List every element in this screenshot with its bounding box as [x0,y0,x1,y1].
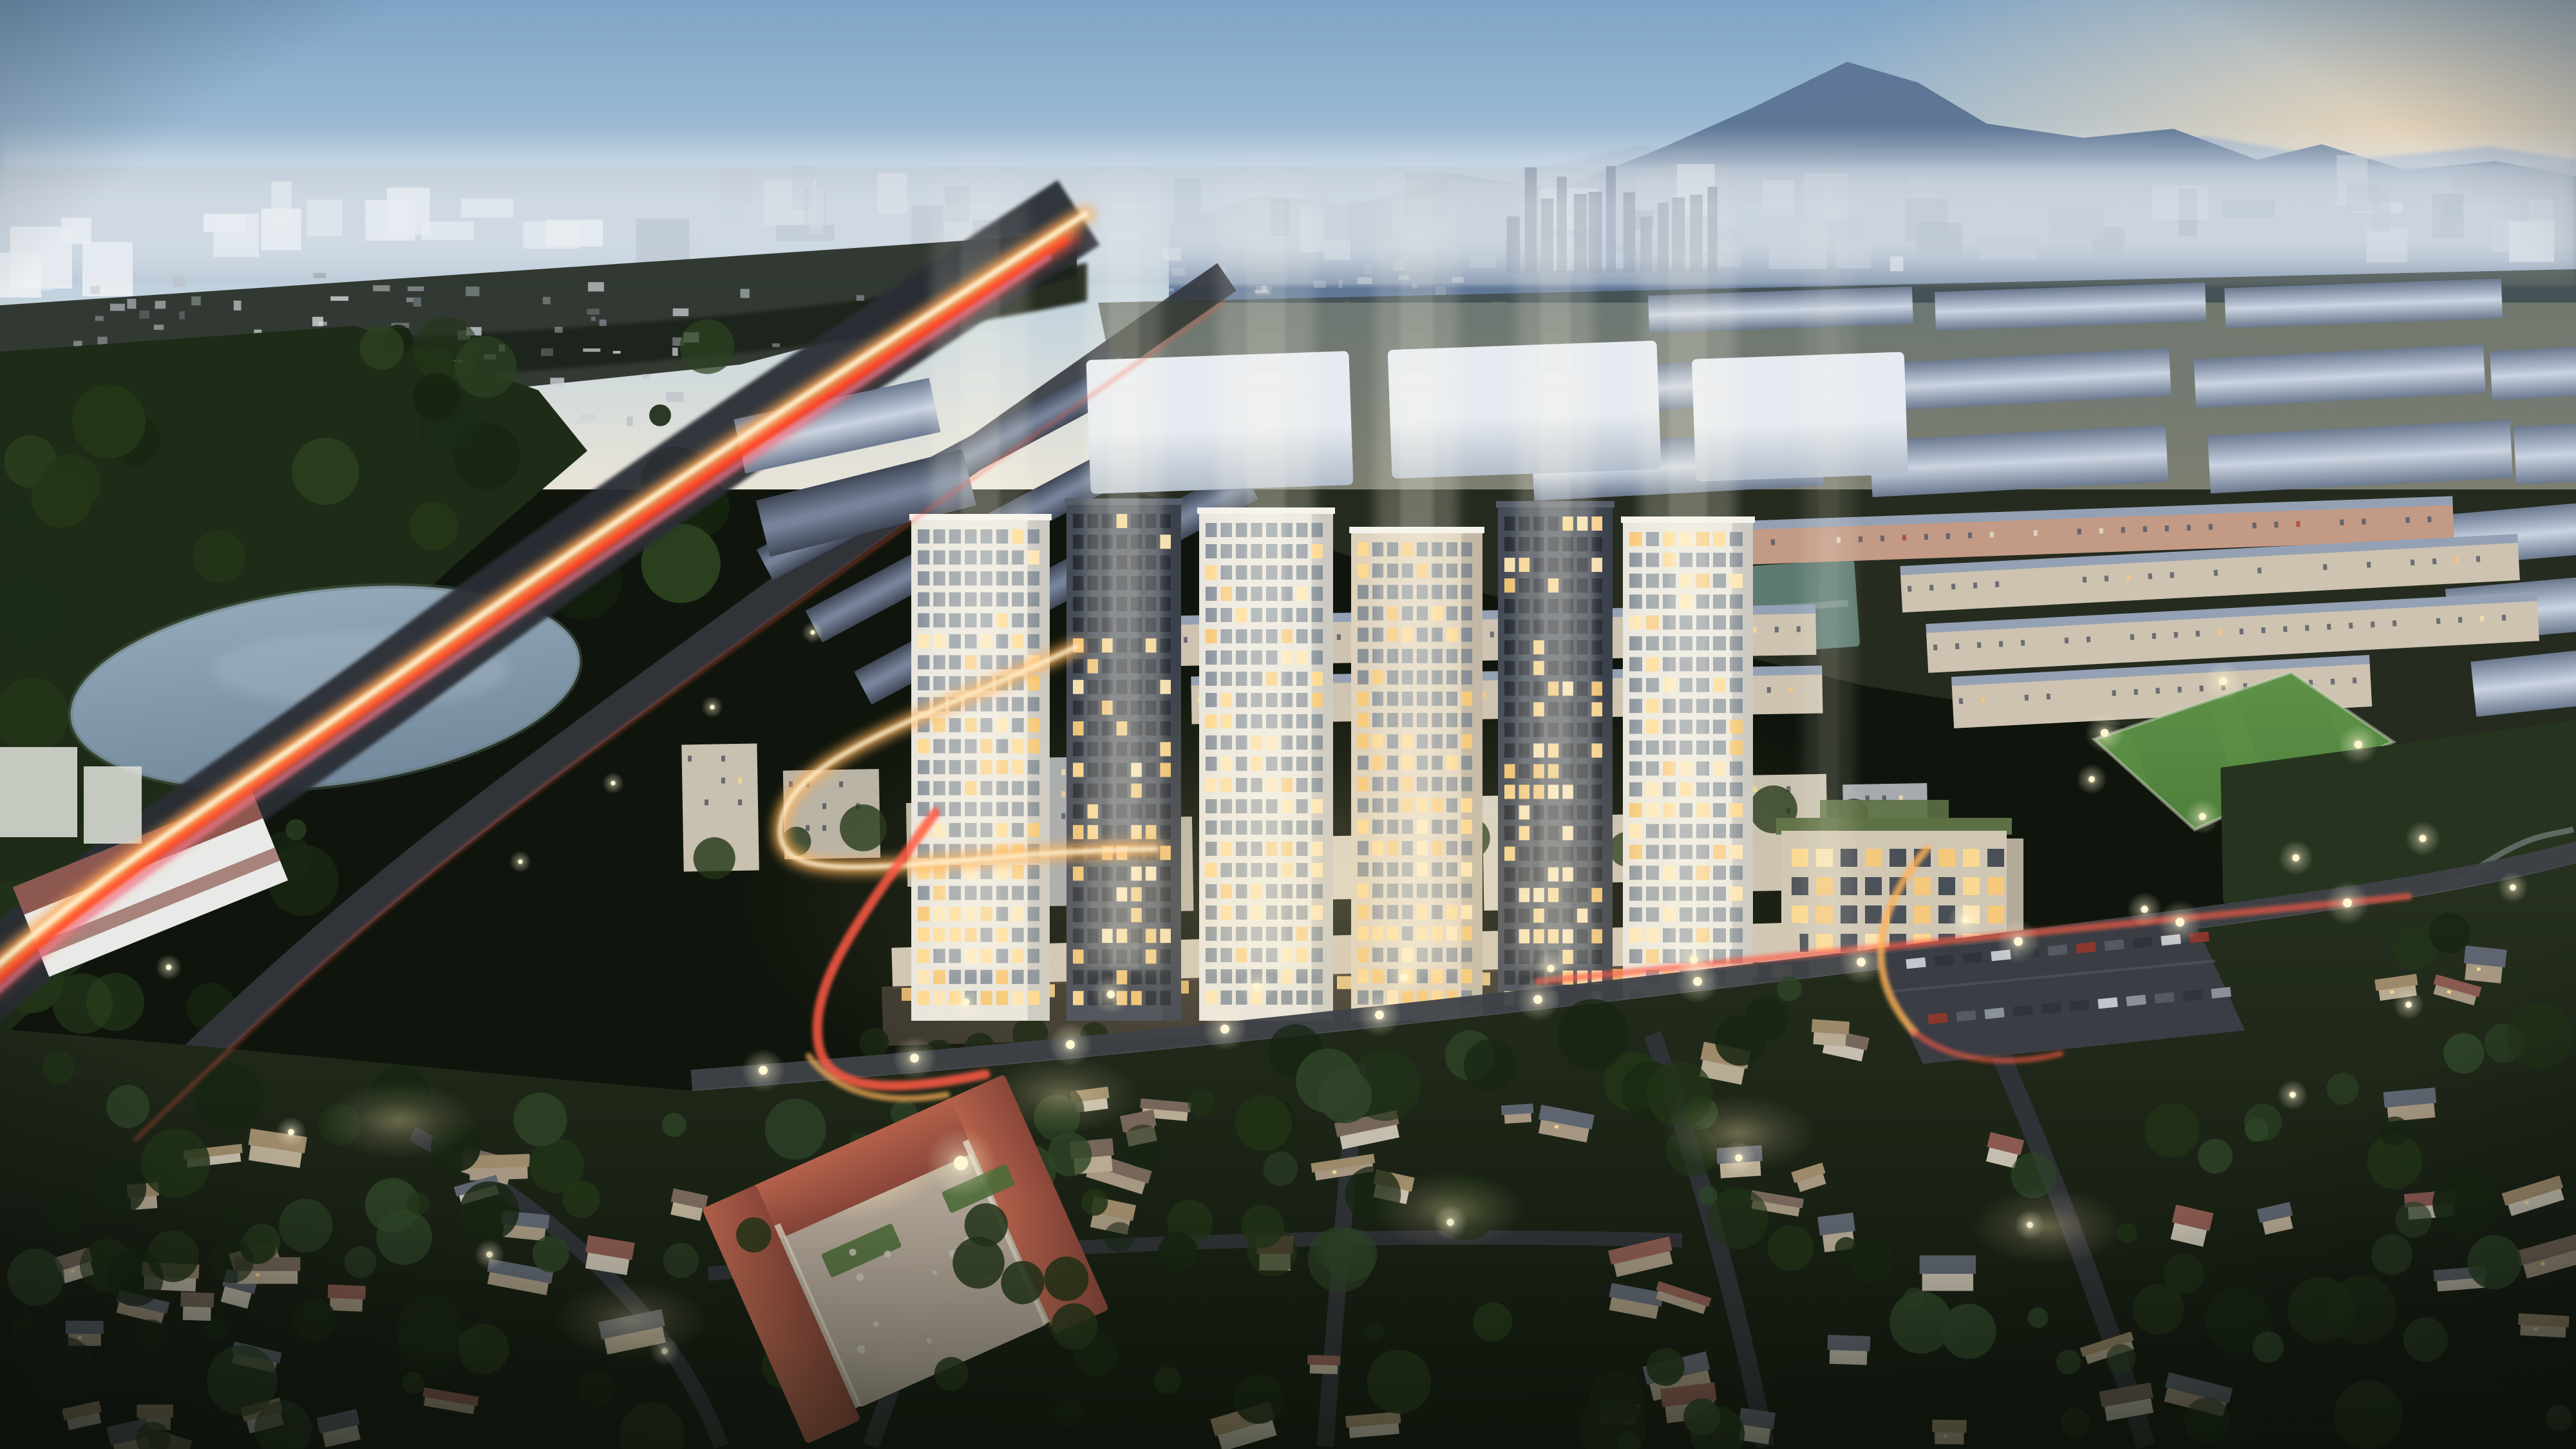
render-canvas: Aerial dusk rendering of a high-rise res… [0,0,2576,1449]
vignette-overlay [0,0,2576,1449]
aerial-cityscape-render: Aerial dusk rendering of a high-rise res… [0,0,2576,1449]
